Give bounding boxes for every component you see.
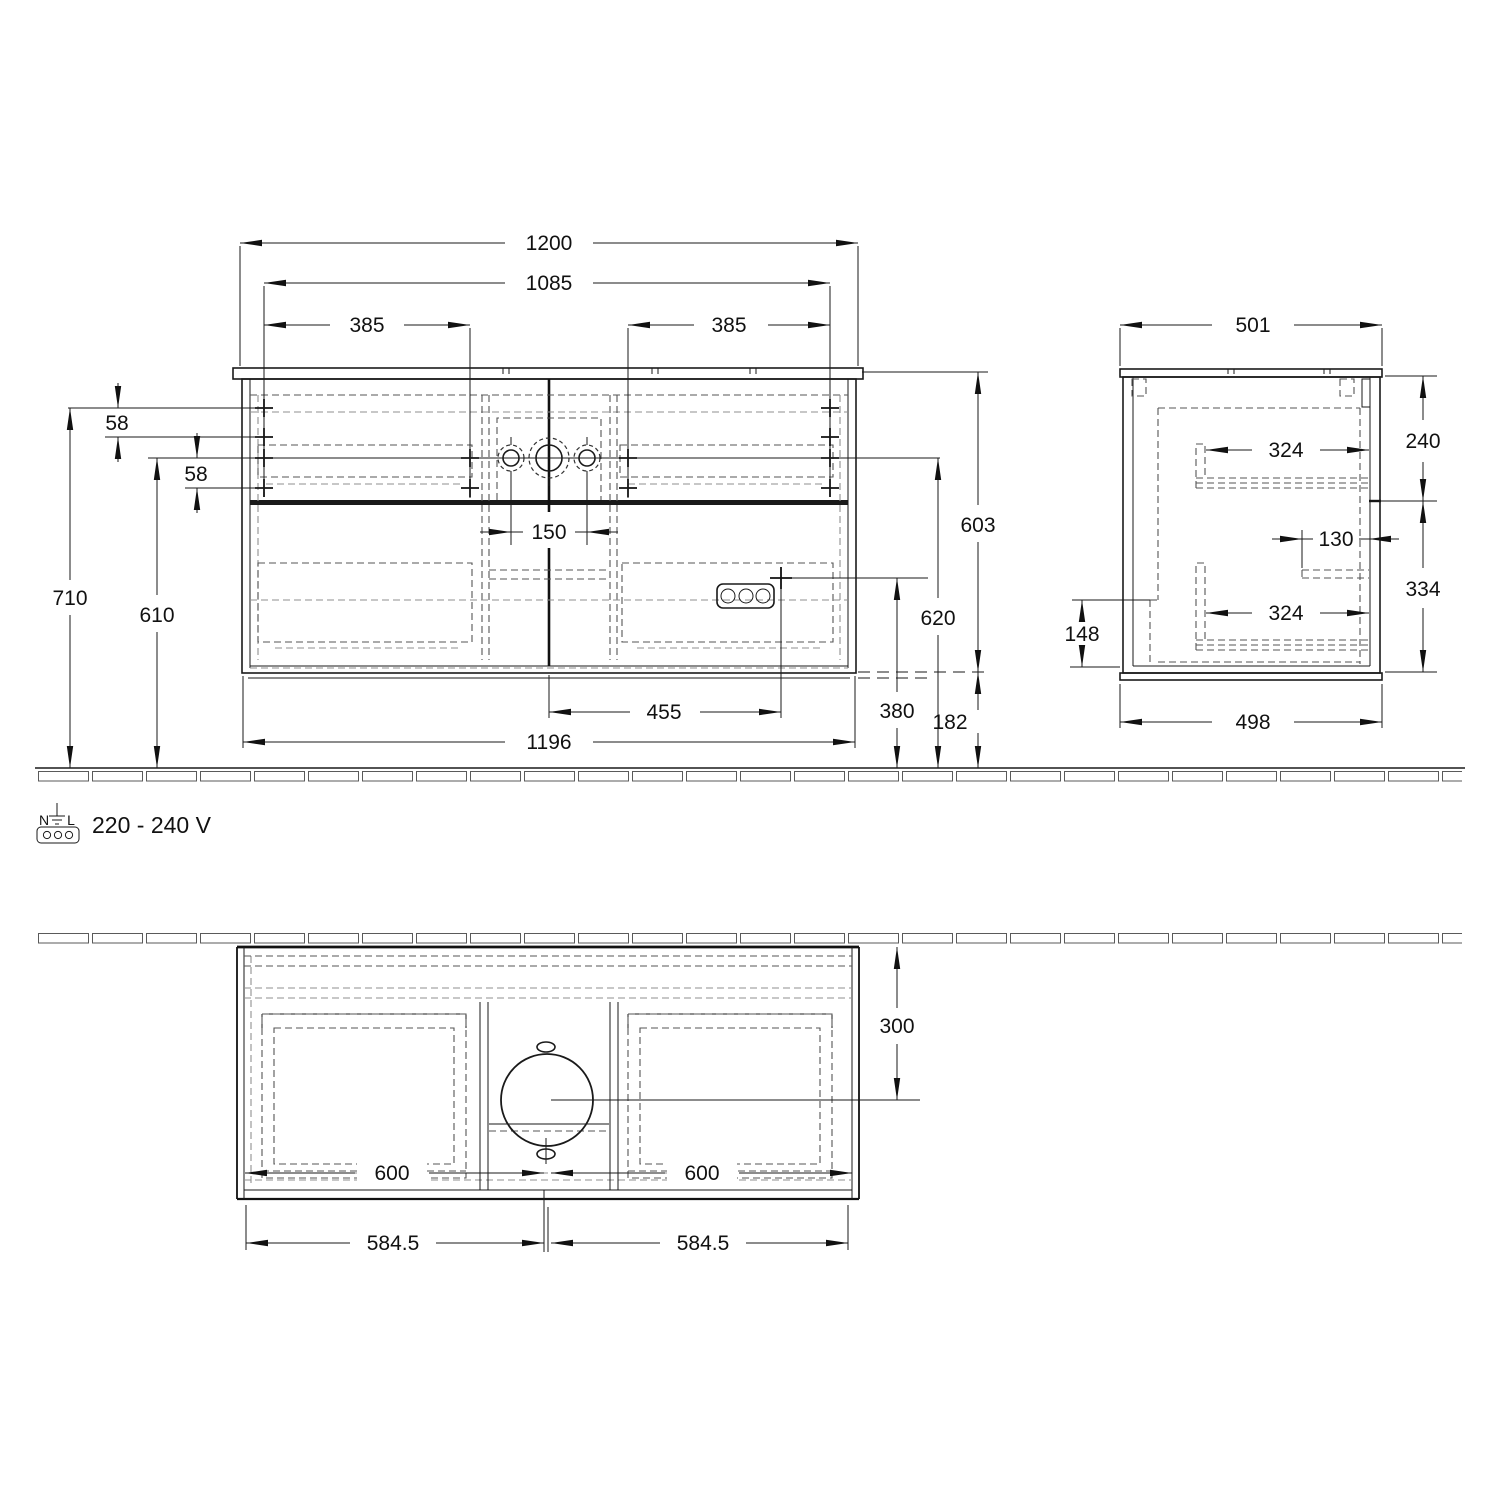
side-view: 501 240 324 130 334 148 324 498 [1064,314,1440,734]
drain-hole [501,1042,593,1164]
dim-front-outlet-offset: 455 [646,701,681,724]
voltage-label: 220 - 240 V [92,812,212,838]
counter-joint-ticks [503,368,756,374]
technical-drawing: 1200 1085 385 385 58 58 710 610 [0,0,1500,1500]
plan-drawer-left [262,1014,466,1178]
plan-hidden-lines [244,956,852,1185]
side-extension-lines [1070,328,1437,728]
dim-front-tap-spacing: 150 [531,521,566,544]
dim-front-cabinet-height: 603 [960,514,995,537]
dim-front-mounting-right: 385 [711,314,746,337]
plan-drawer-right [628,1014,832,1178]
dim-side-depth-bottom: 498 [1235,711,1270,734]
dim-plan-drawer-width-left: 600 [374,1162,409,1185]
dim-side-rail-offset: 130 [1318,528,1353,551]
dim-front-cabinet-width: 1196 [526,731,571,754]
drawing-sheet: 1200 1085 385 385 58 58 710 610 [0,0,1500,1500]
socket-icon [37,827,79,843]
side-hidden-lines [1132,379,1369,664]
dim-front-outlet-height: 620 [920,607,955,630]
dim-front-offset-row2: 58 [184,463,207,486]
dim-front-outlet-drop: 380 [879,700,914,723]
dim-front-height-top-row: 710 [52,587,87,610]
line-label: L [67,812,75,828]
power-connection: N L 220 - 240 V [37,803,212,843]
dim-side-back-cutout-height: 148 [1064,623,1099,646]
dim-front-under-clearance: 182 [932,711,967,734]
dim-plan-half-width-right: 584.5 [677,1232,730,1255]
neutral-label: N [39,812,49,828]
plan-extension-lines [246,1100,920,1252]
wall-hatch [38,933,1462,944]
dim-front-height-tap-row: 610 [139,604,174,627]
dim-front-mounting-span: 1085 [526,272,573,295]
plan-view: 300 600 600 584.5 584.5 [237,947,920,1255]
dim-side-upper-drawer-height: 240 [1405,430,1440,453]
dim-plan-half-width-left: 584.5 [367,1232,420,1255]
dim-side-depth-top: 501 [1235,314,1270,337]
dim-plan-drawer-width-right: 600 [684,1162,719,1185]
earth-ground-icon [49,803,65,824]
dim-side-lower-rail-depth: 324 [1268,602,1303,625]
mounting-point-crosses [255,399,839,497]
floor-hatch [35,768,1465,782]
plan-dimensions: 300 600 600 584.5 584.5 [245,947,915,1255]
dim-side-lower-drawer-height: 334 [1405,578,1440,601]
dim-front-overall-width: 1200 [526,232,573,255]
dim-front-mounting-left: 385 [349,314,384,337]
dim-front-offset-row1: 58 [105,412,128,435]
dim-plan-basin-center-depth: 300 [879,1015,914,1038]
front-view: 1200 1085 385 385 58 58 710 610 [52,232,995,768]
dim-side-upper-rail-depth: 324 [1268,439,1303,462]
